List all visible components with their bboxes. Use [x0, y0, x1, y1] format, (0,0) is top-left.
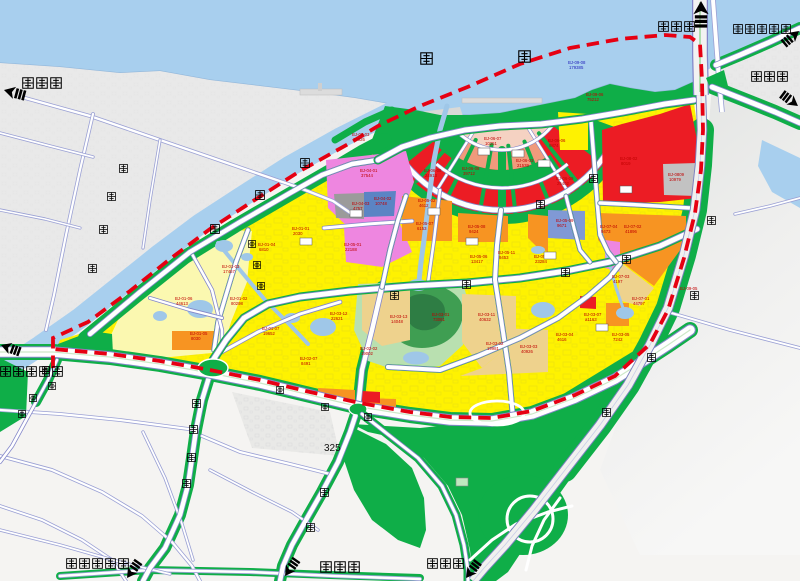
svg-text:6810: 6810	[259, 247, 269, 252]
svg-text:2030: 2030	[293, 231, 303, 236]
svg-text:179385: 179385	[569, 65, 584, 70]
svg-text:21539: 21539	[517, 163, 530, 168]
svg-text:19652: 19652	[263, 331, 276, 336]
svg-text:37544: 37544	[361, 173, 374, 178]
svg-text:19002: 19002	[361, 351, 374, 356]
svg-text:6153: 6153	[417, 226, 427, 231]
svg-text:9424: 9424	[469, 229, 479, 234]
svg-text:22621: 22621	[331, 316, 344, 321]
svg-text:9473: 9473	[601, 229, 611, 234]
svg-text:23284: 23284	[535, 259, 548, 264]
svg-text:8019: 8019	[621, 161, 631, 166]
svg-text:17457: 17457	[223, 269, 236, 274]
svg-text:8491: 8491	[301, 361, 311, 366]
svg-text:29026: 29026	[353, 137, 366, 142]
svg-text:73061: 73061	[433, 317, 446, 322]
svg-text:10748: 10748	[375, 201, 388, 206]
svg-text:80298: 80298	[231, 301, 244, 306]
svg-text:41896: 41896	[625, 229, 638, 234]
svg-text:44613: 44613	[176, 301, 189, 306]
svg-text:7242: 7242	[613, 337, 623, 342]
svg-text:4616: 4616	[557, 337, 567, 342]
svg-text:BJ-09-05: BJ-09-05	[680, 286, 698, 291]
svg-text:44797: 44797	[633, 301, 646, 306]
svg-text:25402: 25402	[557, 181, 570, 186]
svg-text:325: 325	[324, 443, 341, 454]
svg-text:75212: 75212	[587, 97, 600, 102]
svg-text:9874: 9874	[549, 143, 559, 148]
svg-text:9453: 9453	[499, 255, 509, 260]
svg-text:a1163: a1163	[585, 317, 597, 322]
svg-text:4197: 4197	[613, 279, 623, 284]
svg-text:40926: 40926	[521, 349, 534, 354]
svg-text:13417: 13417	[471, 259, 484, 264]
svg-text:19981: 19981	[487, 346, 500, 351]
svg-text:9671: 9671	[557, 223, 567, 228]
svg-text:22188: 22188	[345, 247, 358, 252]
svg-text:10979: 10979	[669, 177, 682, 182]
svg-text:40632: 40632	[479, 317, 492, 322]
svg-text:24913: 24913	[425, 173, 438, 178]
svg-text:39712: 39712	[463, 171, 476, 176]
svg-text:14048: 14048	[391, 319, 404, 324]
svg-text:4612: 4612	[419, 203, 429, 208]
svg-text:10251: 10251	[485, 141, 498, 146]
svg-text:8030: 8030	[191, 336, 201, 341]
